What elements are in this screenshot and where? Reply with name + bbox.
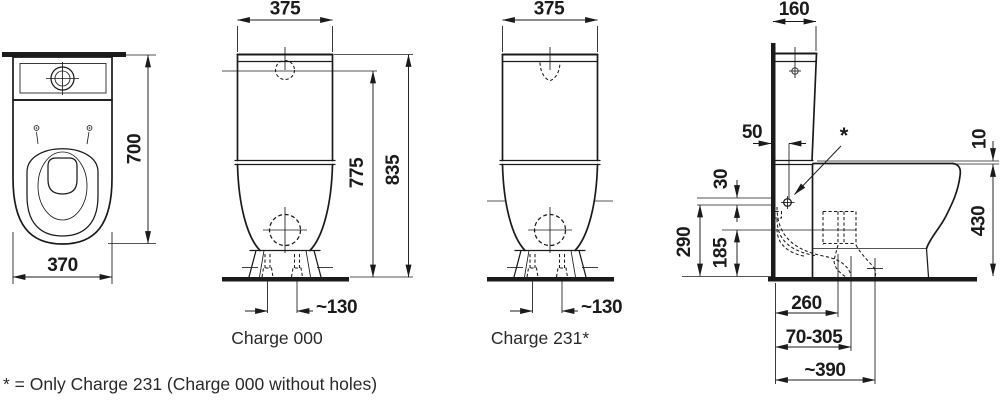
front-view-charge-000: 375: [222, 0, 413, 348]
dim-label-185: 185: [711, 237, 732, 268]
hidden-flush-pipes: [776, 207, 876, 277]
asterisk-callout: *: [795, 123, 849, 195]
fixing-screws: [507, 254, 598, 277]
dim-label-835: 835: [383, 154, 404, 185]
floor-bar: [222, 277, 349, 282]
dim-label-top-width: 370: [47, 255, 78, 276]
cistern-front: [500, 55, 600, 165]
toilet-dimension-drawing: 700 370 375: [0, 0, 1000, 401]
technical-drawing-page: 700 370 375: [0, 0, 1000, 401]
bowl-side-profile: [813, 164, 960, 278]
seat-hinges: [34, 126, 92, 144]
dim-label-width: 375: [534, 0, 565, 20]
floor-bar: [487, 277, 614, 282]
dim-label-screws-231: ~130: [581, 297, 622, 318]
lid-fixing-hole: [789, 47, 801, 78]
side-view: 160 50 *: [674, 0, 999, 384]
water-inlet-hidden: [528, 207, 572, 253]
dim-label-30: 30: [711, 169, 732, 189]
dim-label-width: 375: [270, 0, 301, 20]
dim-label-50: 50: [742, 122, 762, 143]
water-supply-hole: [781, 196, 795, 209]
wall-bar: [771, 43, 776, 282]
dim-label-290: 290: [674, 227, 695, 258]
dim-label-390: ~390: [804, 360, 845, 381]
bowl-outline-top: [13, 100, 112, 244]
top-view: 700 370: [2, 52, 156, 284]
dim-label-10: 10: [970, 129, 991, 149]
cistern-side: [776, 54, 817, 278]
footnote: * = Only Charge 231 (Charge 000 without …: [3, 374, 377, 394]
floor-bar: [768, 277, 977, 282]
dim-label-775: 775: [347, 157, 368, 188]
dim-label-top-depth: 700: [125, 134, 146, 165]
seat-outline: [27, 149, 98, 236]
dim-label-160: 160: [779, 0, 810, 20]
bowl-opening: [48, 158, 77, 194]
dim-label-screws-000: ~130: [316, 297, 357, 318]
dim-label-70-305: 70-305: [786, 327, 844, 348]
asterisk-label: *: [840, 123, 849, 148]
seat-inner-ring: [38, 152, 87, 220]
water-inlet-hidden: [263, 207, 307, 253]
dim-label-430: 430: [969, 206, 990, 237]
fixing-screws: [242, 254, 333, 277]
front-view-charge-231: 375: [487, 0, 622, 348]
flush-button-icon: [46, 62, 79, 95]
caption-charge-000: Charge 000: [231, 328, 323, 348]
dim-label-260: 260: [791, 293, 822, 314]
caption-charge-231: Charge 231*: [491, 328, 589, 348]
